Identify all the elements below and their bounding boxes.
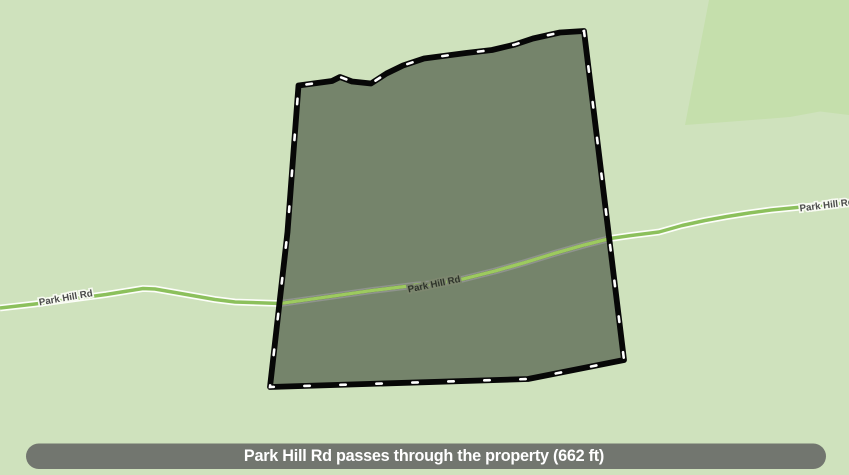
svg-text:Park Hill Rd passes through th: Park Hill Rd passes through the property…	[244, 447, 604, 465]
